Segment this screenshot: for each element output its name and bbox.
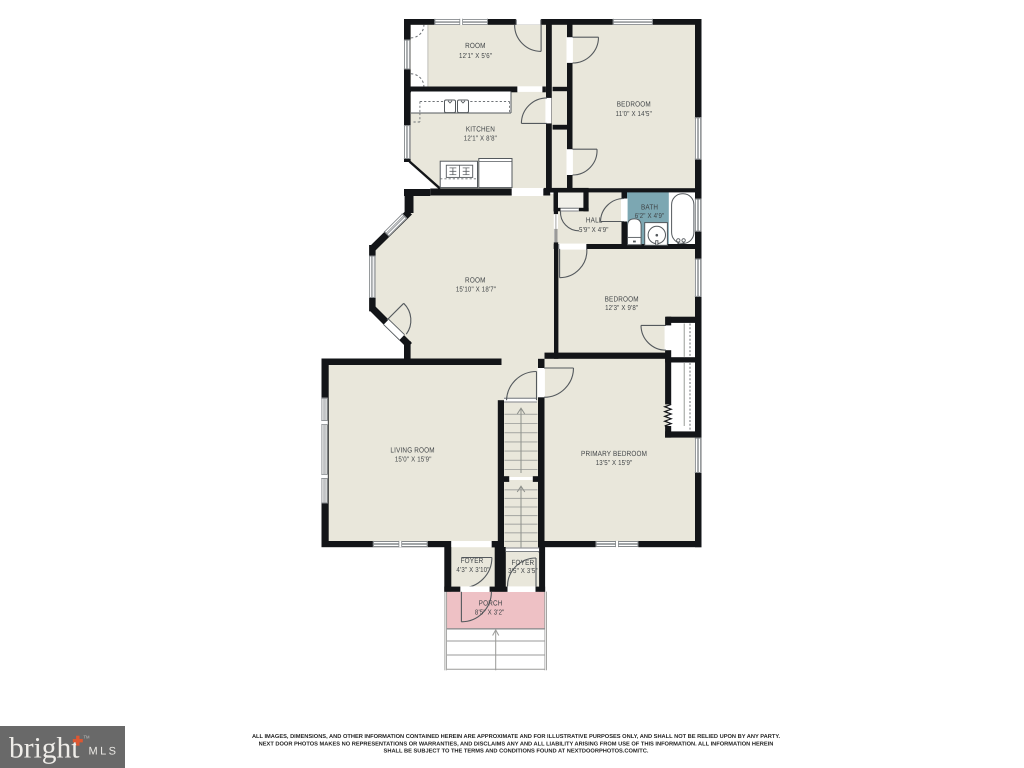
svg-text:13'5" X 15'9": 13'5" X 15'9" [596,458,633,467]
svg-text:6'2" X 4'9": 6'2" X 4'9" [635,211,665,220]
svg-text:LIVING ROOM: LIVING ROOM [390,445,434,454]
svg-text:12'3" X 9'8": 12'3" X 9'8" [605,303,638,312]
svg-text:15'0" X 15'9": 15'0" X 15'9" [395,454,432,463]
svg-text:ROOM: ROOM [465,41,486,50]
svg-text:5'9" X 4'9": 5'9" X 4'9" [579,225,609,234]
svg-text:ROOM: ROOM [465,276,486,285]
svg-text:SHALL BE SUBJECT TO THE TERMS: SHALL BE SUBJECT TO THE TERMS AND CONDIT… [384,748,649,755]
svg-text:12'1" X 8'8": 12'1" X 8'8" [464,134,497,143]
svg-text:4'3" X 3'10": 4'3" X 3'10" [456,565,489,574]
svg-text:bright: bright [9,733,80,765]
svg-text:ALL IMAGES, DIMENSIONS, AND OT: ALL IMAGES, DIMENSIONS, AND OTHER INFORM… [252,734,781,740]
svg-text:NEXT DOOR PHOTOS MAKES NO REPR: NEXT DOOR PHOTOS MAKES NO REPRESENTATION… [259,742,774,748]
svg-text:PORCH: PORCH [479,598,503,607]
svg-text:12'1" X 5'6": 12'1" X 5'6" [459,51,492,60]
svg-text:8'5" X 3'2": 8'5" X 3'2" [475,608,505,617]
svg-text:FOYER: FOYER [461,556,484,565]
svg-text:BEDROOM: BEDROOM [617,100,651,109]
svg-text:KITCHEN: KITCHEN [466,124,495,133]
svg-text:PRIMARY BEDROOM: PRIMARY BEDROOM [581,449,647,458]
svg-text:MLS: MLS [89,746,119,758]
svg-text:3'5" X 3'5": 3'5" X 3'5" [508,566,538,575]
svg-text:TM: TM [84,734,91,739]
svg-text:11'0" X 14'5": 11'0" X 14'5" [616,109,652,118]
svg-text:15'10" X 18'7": 15'10" X 18'7" [456,285,497,294]
svg-text:HALL: HALL [586,216,603,225]
